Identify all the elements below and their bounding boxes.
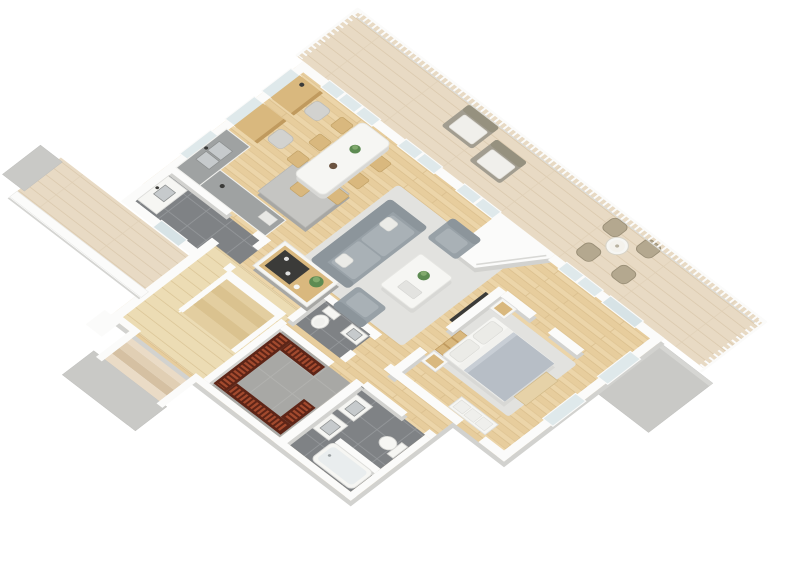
floor-plan-canvas bbox=[0, 0, 799, 565]
floor-plan-3d-render bbox=[0, 0, 799, 565]
